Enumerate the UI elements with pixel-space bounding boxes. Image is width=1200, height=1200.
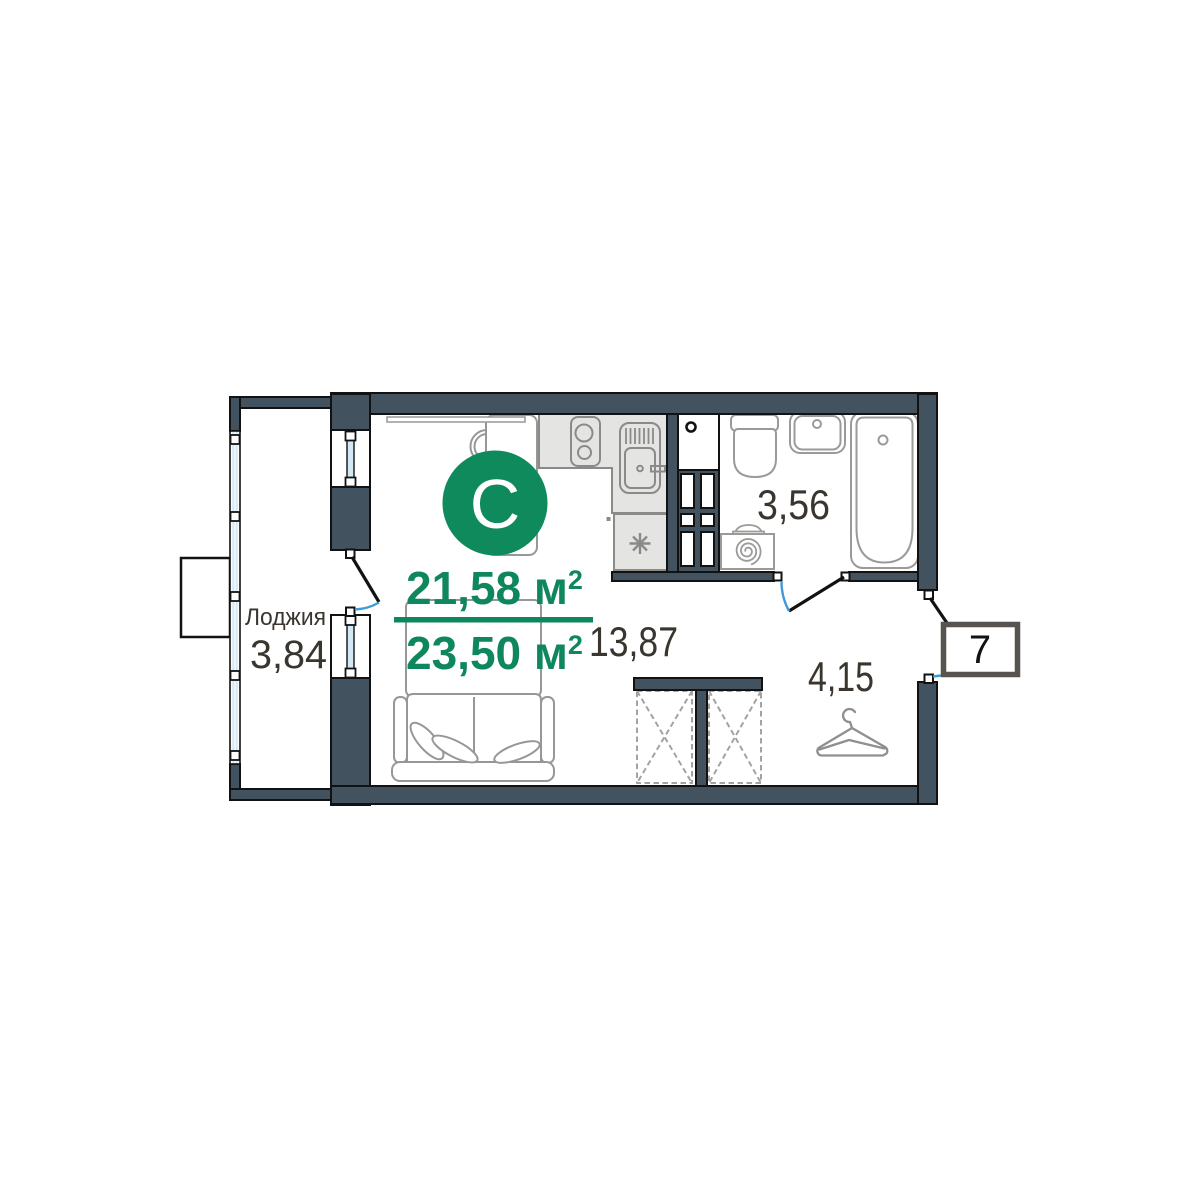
svg-text:3,84: 3,84 xyxy=(250,633,327,677)
svg-text:4,15: 4,15 xyxy=(808,653,874,700)
svg-text:13,87: 13,87 xyxy=(589,618,678,665)
svg-text:Лоджия: Лоджия xyxy=(245,604,326,631)
svg-text:7: 7 xyxy=(969,628,991,672)
svg-text:3,56: 3,56 xyxy=(757,481,830,528)
svg-text:C: C xyxy=(470,465,521,543)
svg-text:21,58 м2: 21,58 м2 xyxy=(406,562,583,614)
svg-text:23,50 м2: 23,50 м2 xyxy=(406,627,583,679)
